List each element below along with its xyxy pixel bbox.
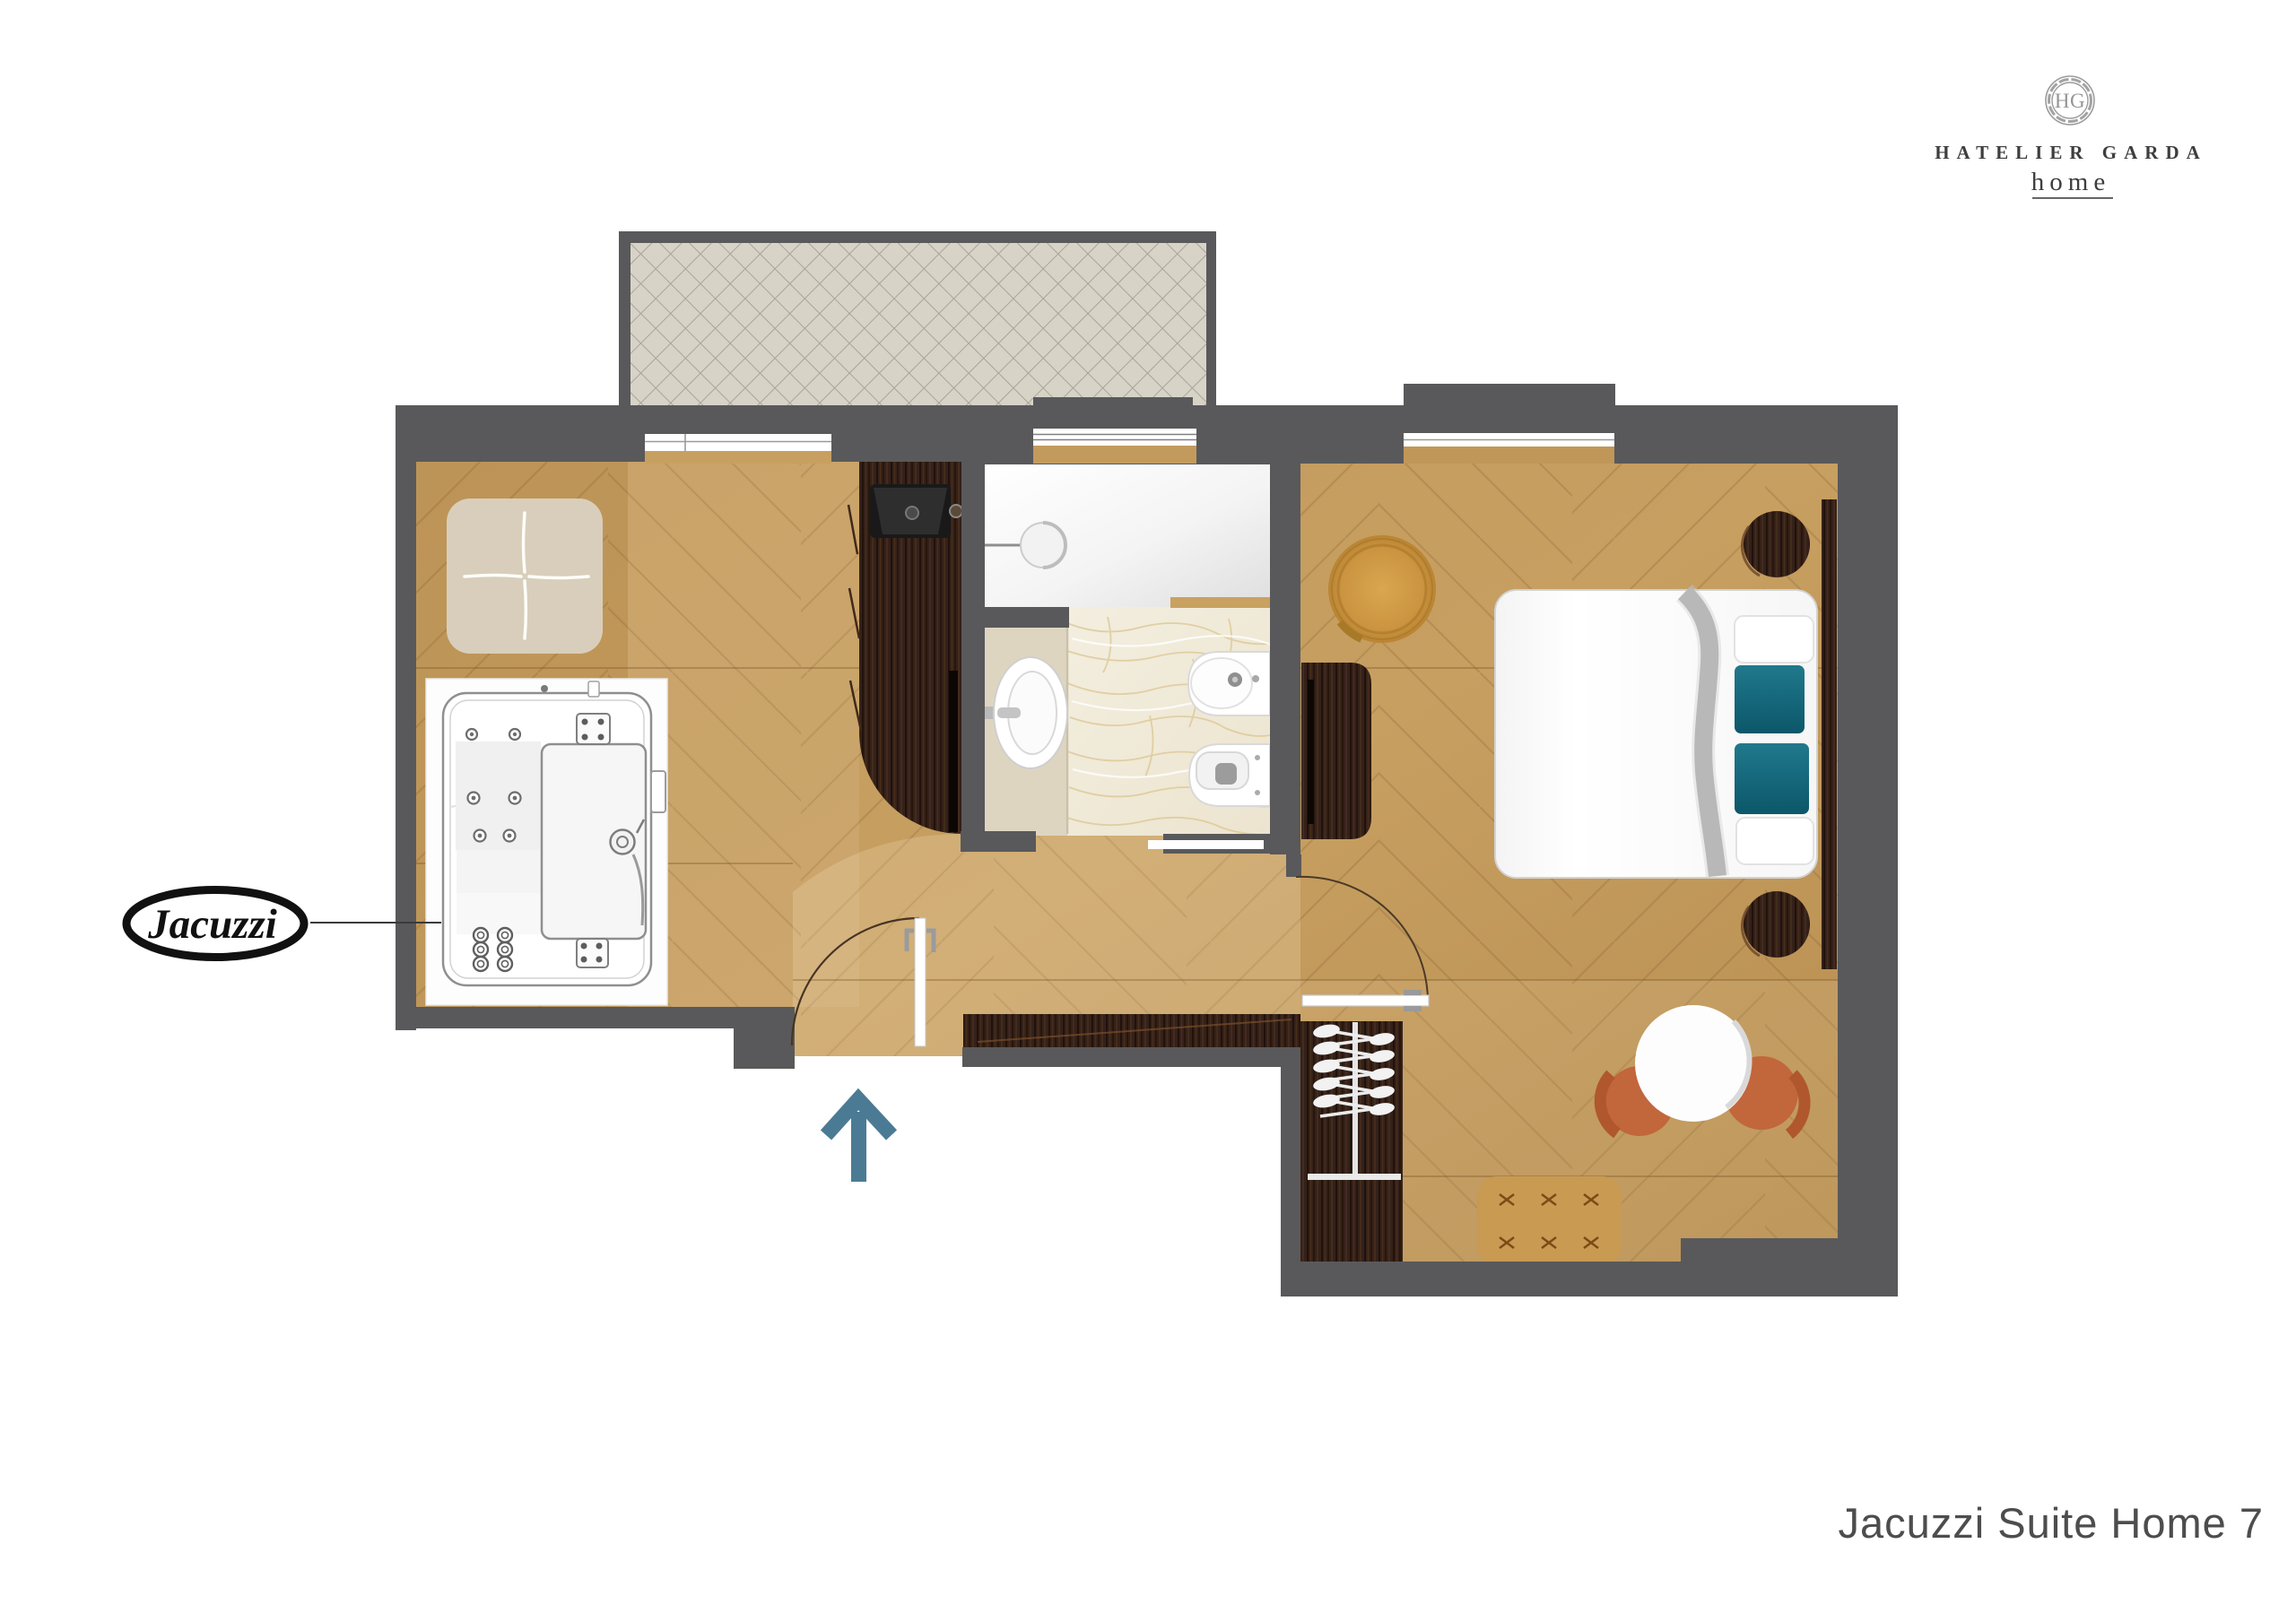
svg-text:home: home (2031, 168, 2110, 196)
svg-text:HG: HG (2055, 90, 2085, 112)
svg-text:Jacuzzi Suite Home 7: Jacuzzi Suite Home 7 (1838, 1499, 2264, 1547)
svg-text:Jacuzzi: Jacuzzi (147, 901, 277, 948)
svg-text:HATELIER GARDA: HATELIER GARDA (1935, 142, 2207, 163)
